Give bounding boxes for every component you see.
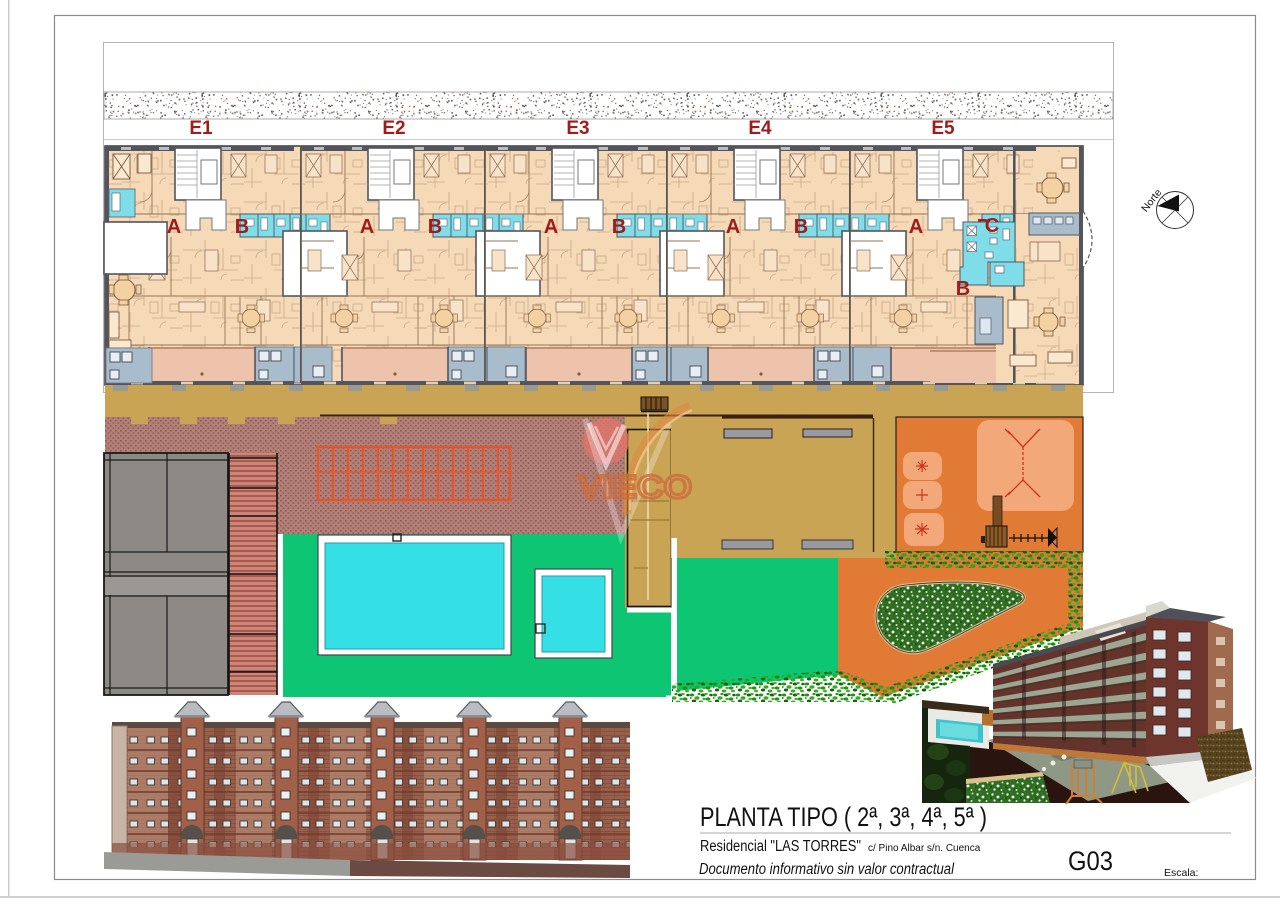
svg-text:E2: E2 (382, 118, 405, 139)
svg-text:Escala:: Escala: (1164, 867, 1198, 879)
svg-text:E3: E3 (566, 118, 589, 139)
svg-text:PLANTA TIPO ( 2ª, 3ª, 4ª, 5ª ): PLANTA TIPO ( 2ª, 3ª, 4ª, 5ª ) (700, 802, 987, 832)
svg-text:c/ Pino Albar s/n. Cuenca: c/ Pino Albar s/n. Cuenca (868, 843, 981, 854)
svg-text:B: B (956, 278, 970, 300)
svg-text:Residencial "LAS TORRES": Residencial "LAS TORRES" (700, 838, 861, 855)
svg-text:G03: G03 (1068, 846, 1113, 876)
svg-text:E1: E1 (189, 118, 213, 139)
svg-text:E4: E4 (748, 118, 772, 139)
svg-text:C: C (985, 215, 999, 237)
svg-text:Documento informativo sin valo: Documento informativo sin valor contract… (699, 861, 954, 878)
svg-text:VIECO: VIECO (578, 469, 692, 505)
svg-text:E5: E5 (931, 118, 955, 139)
